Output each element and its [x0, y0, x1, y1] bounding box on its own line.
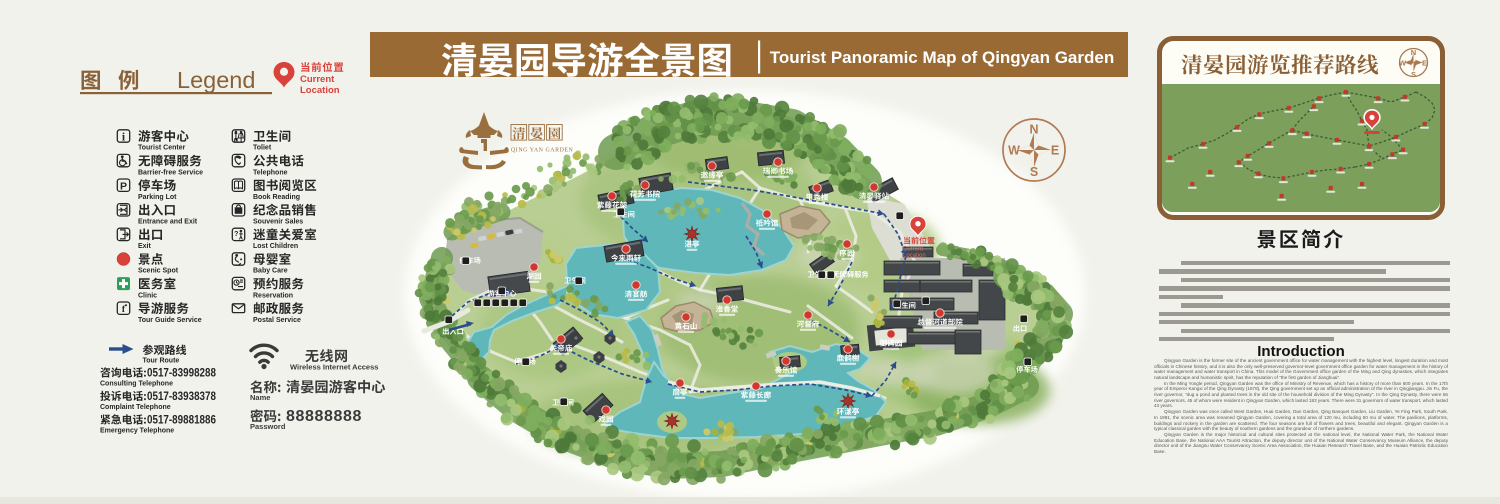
svg-text:Parking Lot: Parking Lot	[138, 194, 177, 201]
svg-text:0517-83998288: 0517-83998288	[147, 368, 217, 380]
svg-text:QING YAN GARDEN: QING YAN GARDEN	[511, 148, 574, 154]
svg-text:Scenic Spot: Scenic Spot	[138, 268, 179, 275]
svg-text:?: ?	[234, 231, 238, 238]
svg-text:Tour Route: Tour Route	[143, 358, 180, 365]
svg-text:S: S	[1030, 165, 1038, 179]
svg-text:E: E	[1051, 144, 1059, 158]
svg-text:Emergency Telephone: Emergency Telephone	[100, 427, 174, 434]
svg-text:Toliet: Toliet	[253, 145, 272, 152]
svg-text:Reservation: Reservation	[253, 292, 293, 299]
svg-text:0517-83938378: 0517-83938378	[147, 391, 217, 403]
svg-text:Telephone: Telephone	[253, 169, 288, 176]
svg-text:Wireless Internet Access: Wireless Internet Access	[290, 363, 378, 372]
svg-text:Current: Current	[903, 247, 923, 253]
svg-text:i: i	[122, 131, 126, 143]
svg-text:P: P	[120, 180, 127, 192]
svg-text:Baby Care: Baby Care	[253, 268, 288, 275]
svg-text:Lost Children: Lost Children	[253, 243, 298, 250]
svg-text:E: E	[1422, 59, 1427, 68]
svg-text:Password: Password	[250, 422, 286, 431]
svg-text:Name: Name	[250, 393, 270, 402]
svg-text:Souvenir Sales: Souvenir Sales	[253, 219, 303, 226]
svg-text:Book Reading: Book Reading	[253, 194, 300, 201]
svg-text:W: W	[1008, 144, 1020, 158]
svg-text:Exit: Exit	[138, 243, 152, 250]
svg-text:Tourist Center: Tourist Center	[138, 145, 186, 152]
svg-text:f: f	[122, 305, 126, 315]
svg-text:Tourist Panoramic Map of Qingy: Tourist Panoramic Map of Qingyan Garden	[770, 48, 1114, 67]
svg-text:Consulting Telephone: Consulting Telephone	[100, 380, 173, 387]
svg-text:0517-89881886: 0517-89881886	[147, 415, 216, 427]
svg-text:Entrance and Exit: Entrance and Exit	[138, 219, 198, 226]
svg-text:Tour Guide Service: Tour Guide Service	[138, 317, 202, 324]
svg-text:Location: Location	[903, 253, 926, 259]
svg-text:Clinic: Clinic	[138, 292, 157, 299]
svg-text:Legend: Legend	[177, 67, 255, 93]
svg-text:W: W	[1399, 59, 1407, 68]
svg-text:Complaint Telephone: Complaint Telephone	[100, 404, 171, 411]
svg-text:Postal Service: Postal Service	[253, 317, 301, 324]
svg-text:88888888: 88888888	[286, 408, 362, 425]
svg-text:Barrier-free Service: Barrier-free Service	[138, 169, 203, 176]
